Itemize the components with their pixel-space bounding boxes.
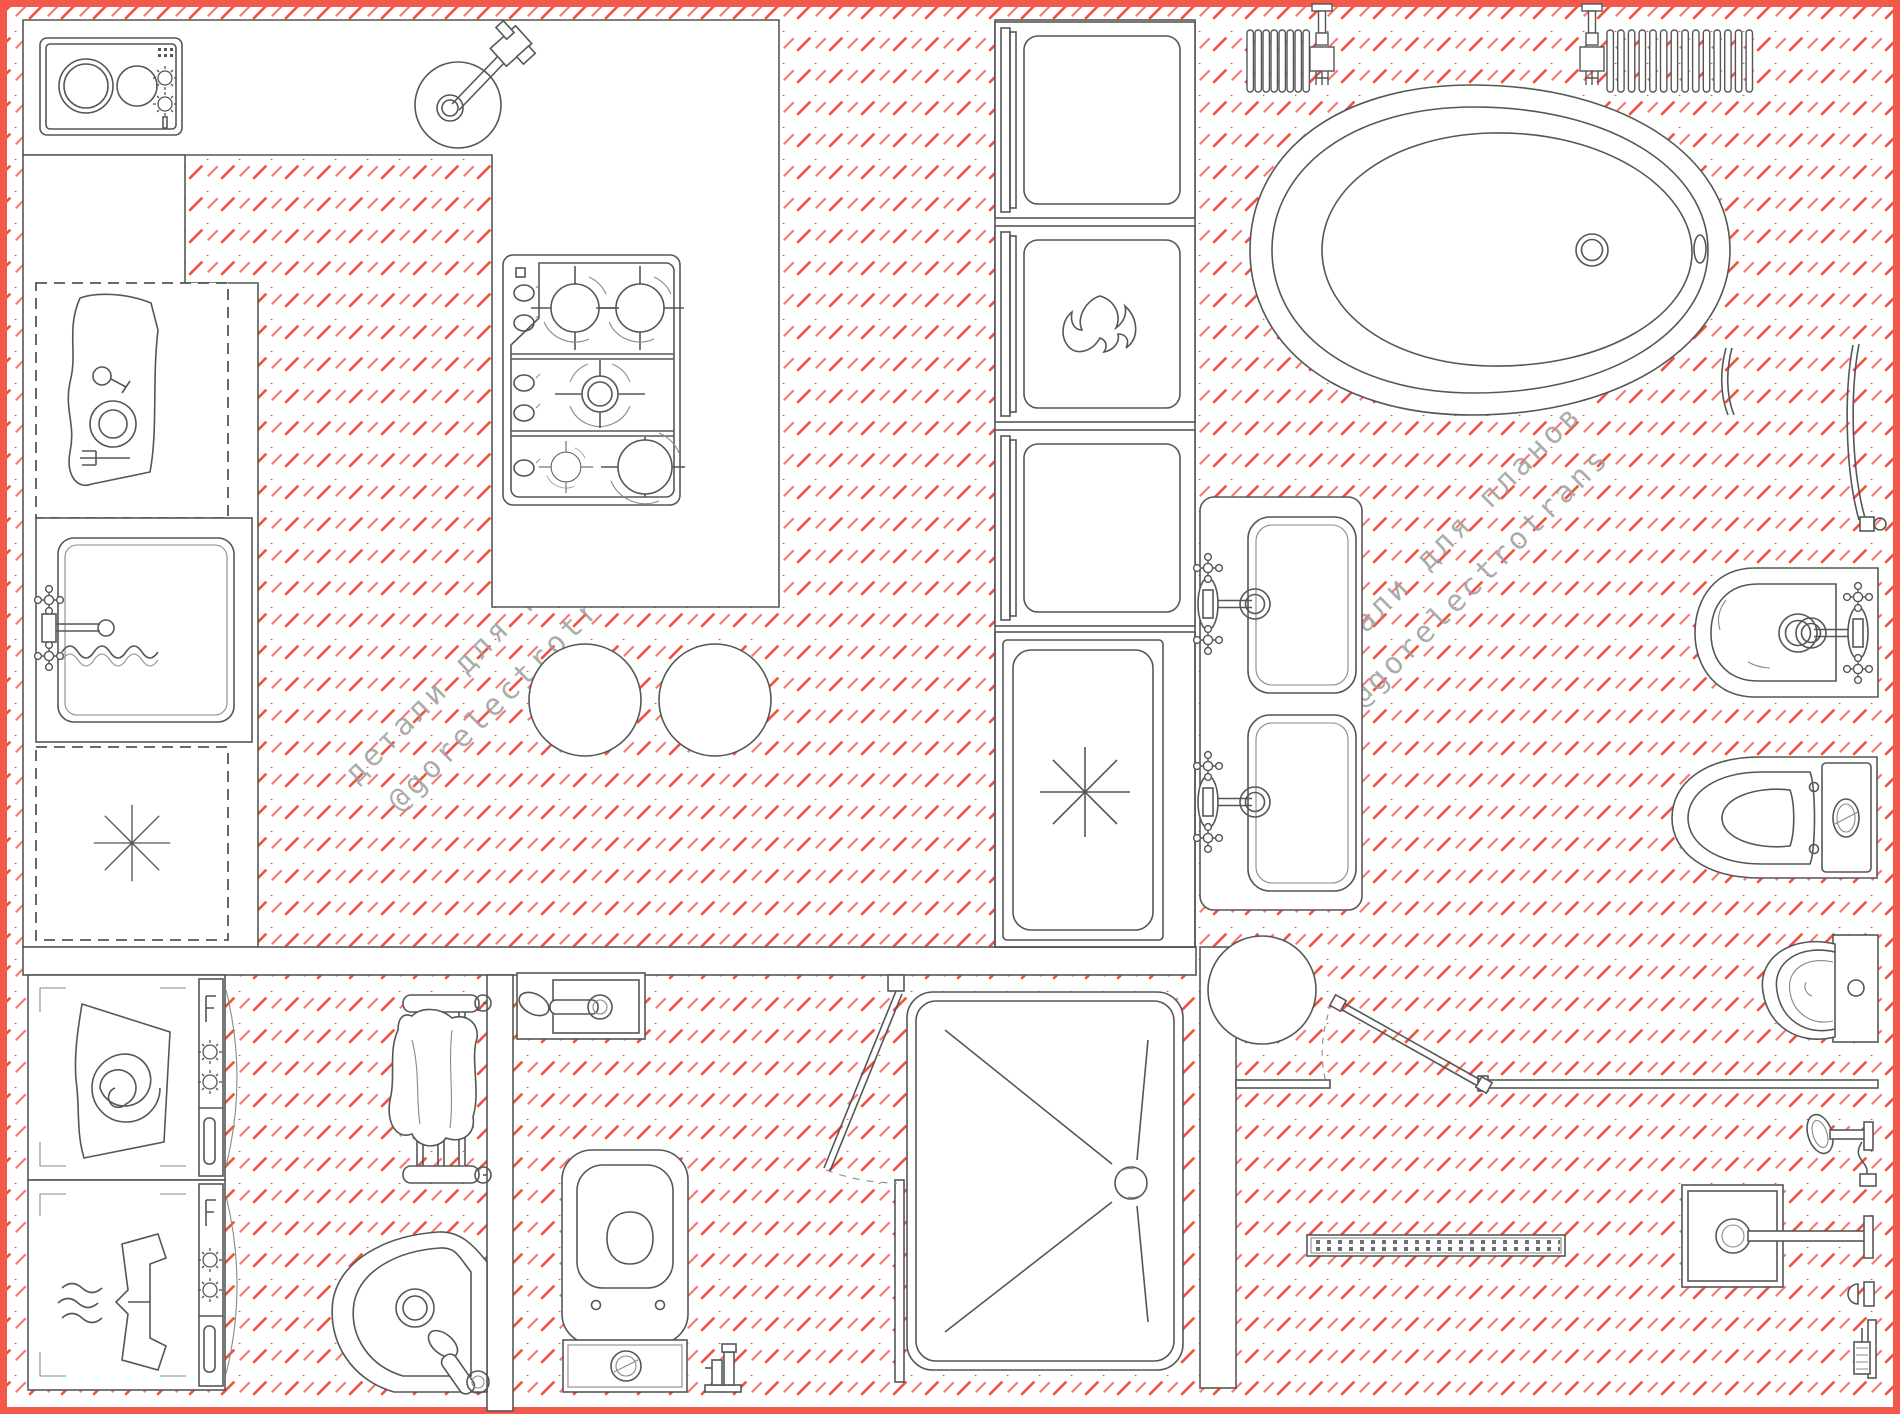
toilet-horizontal bbox=[1672, 757, 1877, 878]
wall-horizontal bbox=[23, 947, 1196, 975]
bracket-icon bbox=[1860, 517, 1874, 531]
dish-cabinet bbox=[36, 283, 228, 518]
tumble-dryer bbox=[28, 1180, 237, 1390]
urinal bbox=[1762, 935, 1878, 1042]
floor-plan-page: детали для планов @gorelectrotrans детал… bbox=[0, 0, 1900, 1414]
oven-unit bbox=[995, 226, 1195, 422]
bathtub bbox=[1250, 85, 1730, 415]
linear-drain bbox=[1307, 1235, 1565, 1256]
wall-mixer bbox=[515, 973, 645, 1039]
asterisk-icon bbox=[94, 805, 171, 882]
tall-unit-2 bbox=[995, 430, 1195, 626]
asterisk-icon bbox=[1040, 747, 1130, 837]
door-hinge bbox=[888, 975, 904, 991]
floor-plan-drawing: детали для планов @gorelectrotrans детал… bbox=[0, 0, 1900, 1414]
hose-connector-icon bbox=[1860, 1174, 1876, 1186]
fixed-glass-panel bbox=[895, 1180, 904, 1382]
bidet-wall bbox=[1695, 568, 1878, 697]
tall-unit-1 bbox=[995, 22, 1195, 218]
kitchen-sink bbox=[35, 518, 252, 742]
towel-icon bbox=[389, 1009, 477, 1145]
washing-machine bbox=[28, 975, 237, 1180]
dishwasher-left bbox=[36, 747, 228, 940]
tall-appliance-column bbox=[995, 20, 1195, 947]
bar-stool-icon bbox=[529, 644, 641, 756]
cooktop-domino bbox=[40, 38, 182, 135]
vanity-double bbox=[1194, 497, 1362, 910]
wall-vertical bbox=[487, 975, 513, 1411]
stool-round bbox=[1208, 936, 1316, 1044]
toilet-vertical bbox=[562, 1150, 688, 1392]
gas-hob bbox=[503, 255, 685, 505]
bar-stool-icon bbox=[659, 644, 771, 756]
